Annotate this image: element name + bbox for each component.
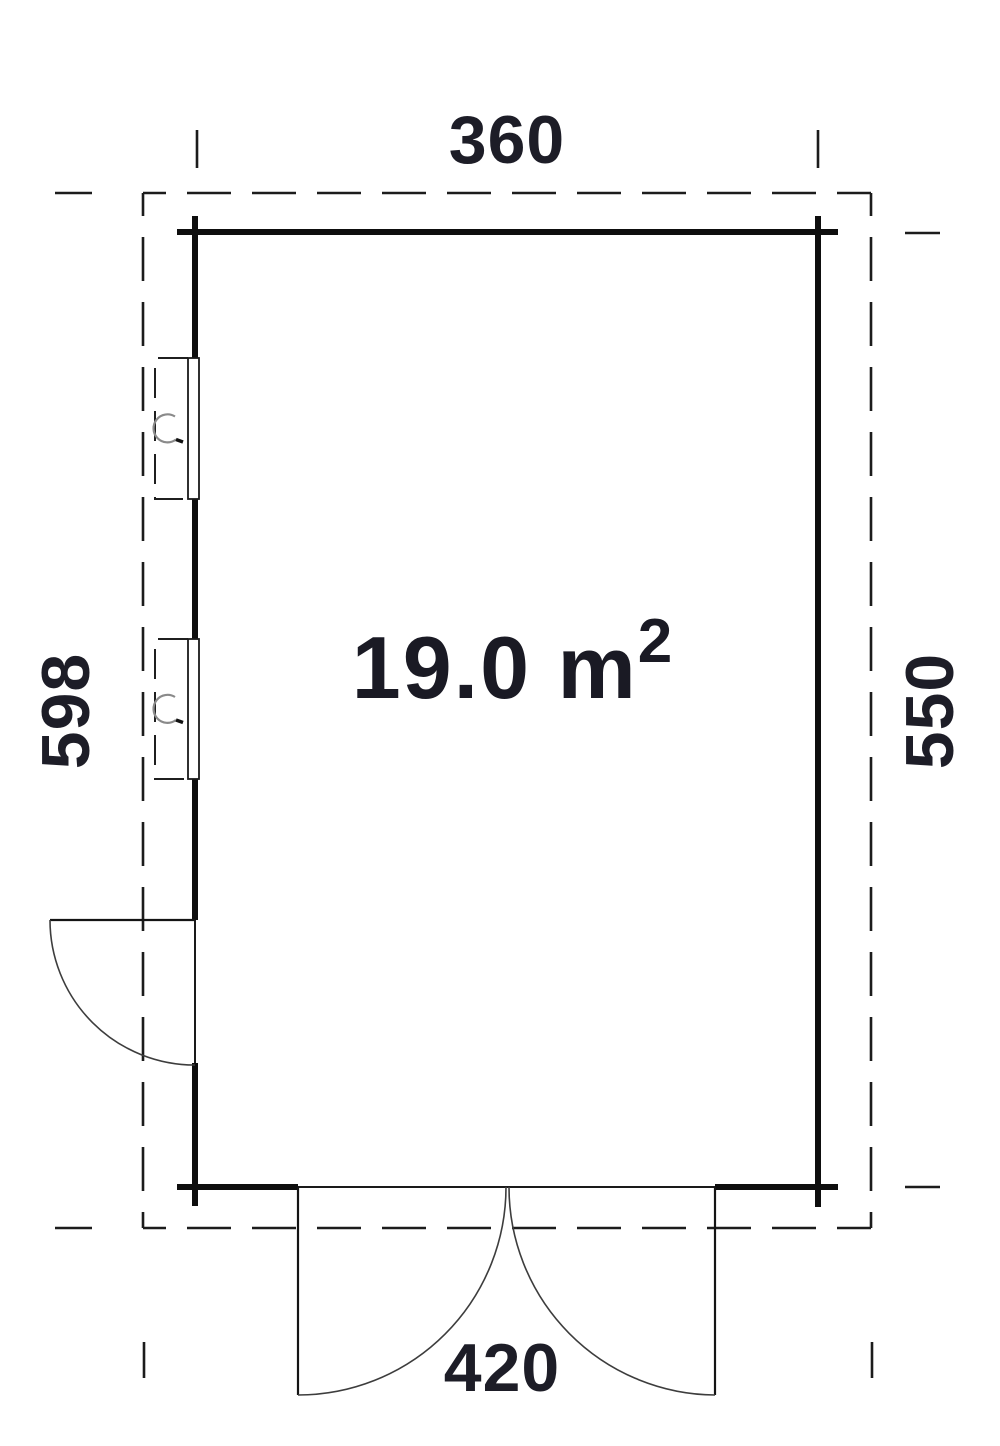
dimension-height-right: 550	[896, 653, 964, 769]
window-handle-tip	[176, 440, 183, 443]
door-swing-arc	[50, 920, 195, 1065]
window-sash-dashed-outline	[155, 358, 188, 499]
single-door-icon	[50, 920, 195, 1065]
window-icon-upper	[154, 358, 199, 499]
window-handle-icon	[154, 414, 176, 442]
dimension-height-left: 598	[32, 653, 100, 769]
window-frame	[188, 639, 199, 779]
dimension-width-bottom: 420	[444, 1334, 560, 1402]
window-sash-dashed-outline	[155, 639, 188, 779]
dimension-width-top: 360	[449, 106, 565, 174]
window-handle-tip	[176, 720, 183, 723]
area-label: 19.0 m2	[352, 624, 674, 712]
floor-plan: 360 420 598 550 19.0 m2	[0, 0, 1000, 1446]
window-handle-icon	[154, 695, 176, 723]
floor-plan-drawing	[0, 0, 1000, 1446]
window-icon-lower	[154, 639, 199, 779]
window-frame	[188, 358, 199, 499]
area-value: 19.0 m	[352, 618, 638, 717]
area-exponent: 2	[638, 607, 674, 676]
